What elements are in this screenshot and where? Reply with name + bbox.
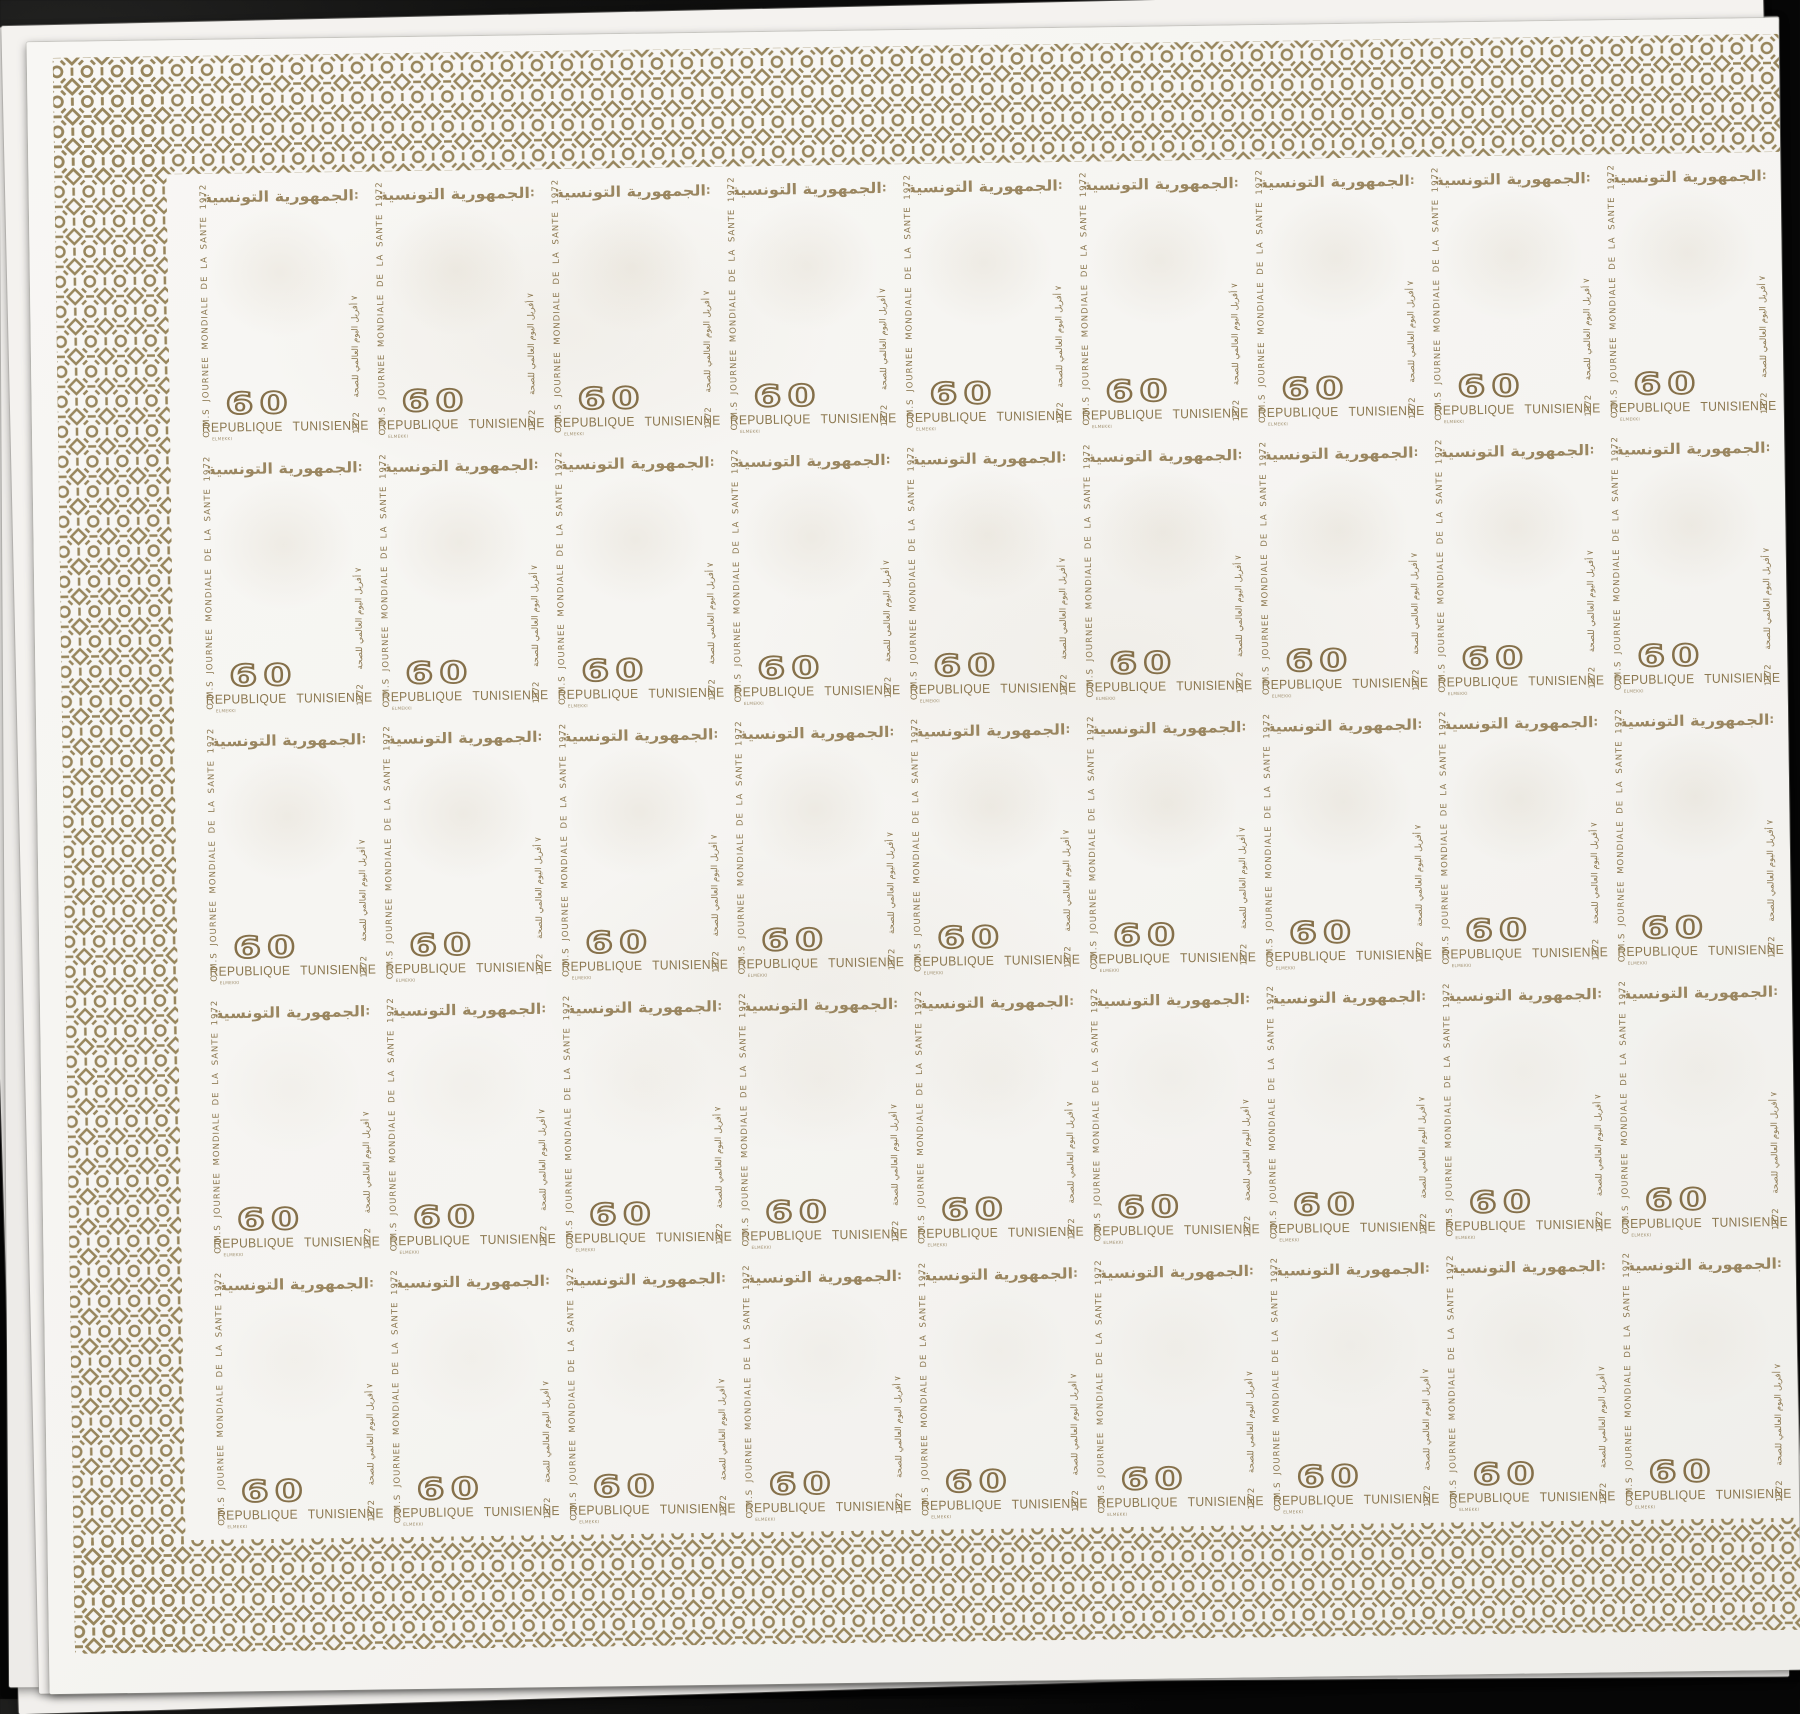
stamp-ghost-offset [737,200,880,384]
stamp-denomination: 60 [761,925,830,956]
stamp-denomination: 60 [405,657,474,688]
stamp-left-inscription: O.M.S JOURNEE MONDIALE DE LA SANTE 1972 [1614,738,1627,962]
stamp-denomination: 60 [1121,1464,1190,1495]
stamp-arabic-title: : الجمهورية التونسية : [907,176,1062,200]
stamp-artist-signature: ELMEKKI [1628,961,1648,966]
stamp-artist-signature: ELMEKKI [755,1517,775,1522]
stamp-artist-signature: ELMEKKI [1631,1233,1651,1238]
right-date-arabic: ٧ أفريل [1065,1102,1075,1129]
right-date-arabic: ٧ أفريل [538,1109,548,1136]
stamp-right-inscription: 1972 ٧ أفريل اليوم العالمي للصحة [1585,462,1598,688]
stamp-right-inscription: 1972 ٧ أفريل اليوم العالمي للصحة [1592,1006,1605,1232]
stamp-right-inscription: 1972 ٧ أفريل اليوم العالمي للصحة [1233,467,1246,693]
stamp-ghost-offset [1452,1007,1595,1191]
arabic-title-text: الجمهورية التونسية [1102,1262,1250,1282]
stamp-arabic-title: : الجمهورية التونسية : [1258,171,1413,195]
stamp-right-inscription: 1972 ٧ أفريل اليوم العالمي للصحة [1420,1281,1433,1507]
arabic-title-text: الجمهورية التونسية [1262,172,1410,192]
stamp: : الجمهورية التونسية : O.M.S JOURNEE MON… [1434,976,1614,1250]
stamp: : الجمهورية التونسية : O.M.S JOURNEE MON… [370,447,550,721]
stamp-right-inscription: 1972 ٧ أفريل اليوم العالمي للصحة [716,1291,729,1517]
right-date-arabic: ٧ أفريل [1597,1366,1607,1393]
stamp-ghost-offset [1280,1281,1423,1465]
stamp: : الجمهورية التونسية : O.M.S JOURNEE MON… [1430,704,1610,978]
stamp-country-name: REPUBLIQUE TUNISIENNE [921,1497,1081,1512]
title-dots-right: : [897,1266,901,1284]
stamp-right-inscription: 1972 ٧ أفريل اليوم العالمي للصحة [705,475,718,701]
stamp-left-inscription: O.M.S JOURNEE MONDIALE DE LA SANTE 1972 [551,209,564,433]
right-date-arabic: ٧ أفريل [365,1384,375,1411]
stamp-denomination: 60 [1457,371,1526,402]
stamp-denomination: 60 [1105,376,1174,407]
right-phrase-arabic: اليوم العالمي للصحة [1594,1124,1605,1196]
stamp-artist-signature: ELMEKKI [568,704,588,709]
stamp-ghost-offset [748,1016,891,1200]
stamp: : الجمهورية التونسية : O.M.S JOURNEE MON… [906,984,1086,1258]
stamp-arabic-title: : الجمهورية التونسية : [214,1002,369,1026]
right-phrase-arabic: اليوم العالمي للصحة [1242,1129,1253,1201]
stamp-artist-signature: ELMEKKI [1452,963,1472,968]
stamp: : الجمهورية التونسية : O.M.S JOURNEE MON… [202,993,382,1267]
stamp-arabic-title: : الجمهورية التونسية : [746,1266,901,1290]
stamp: : الجمهورية التونسية : O.M.S JOURNEE MON… [1258,979,1438,1253]
stamp-artist-signature: ELMEKKI [924,971,944,976]
stamp-right-inscription: 1972 ٧ أفريل اليوم العالمي للصحة [360,1024,373,1250]
stamp-left-inscription: O.M.S JOURNEE MONDIALE DE LA SANTE 1972 [1086,745,1099,969]
stamp: : الجمهورية التونسية : O.M.S JOURNEE MON… [1070,165,1250,439]
stamp-artist-signature: ELMEKKI [223,1253,243,1258]
right-date-arabic: ٧ أفريل [717,1379,727,1406]
title-dots-right: : [1597,984,1601,1002]
stamp-right-inscription: 1972 ٧ أفريل اليوم العالمي للصحة [525,205,538,431]
stamp: : الجمهورية التونسية : O.M.S JOURNEE MON… [722,442,902,716]
arabic-title-text: الجمهورية التونسية [390,728,538,748]
stamp-arabic-title: : الجمهورية التونسية : [555,181,710,205]
stamp: : الجمهورية التونسية : O.M.S JOURNEE MON… [1086,1253,1266,1527]
right-date-arabic: ٧ أفريل [893,1376,903,1403]
right-phrase-arabic: اليوم العالمي للصحة [1062,860,1073,932]
stamp-artist-signature: ELMEKKI [1620,417,1640,422]
title-dots-right: : [541,999,545,1017]
stamp: : الجمهورية التونسية : O.M.S JOURNEE MON… [366,175,546,449]
right-phrase-arabic: اليوم العالمي للصحة [718,1409,729,1481]
stamp-right-inscription: 1972 ٧ أفريل اليوم العالمي للصحة [1068,1286,1081,1512]
stamp-arabic-title: : الجمهورية التونسية : [1450,1256,1605,1280]
stamp-denomination: 60 [241,1476,310,1507]
stamp: : الجمهورية التونسية : O.M.S JOURNEE MON… [1610,974,1790,1248]
title-dots-right: : [1234,173,1238,191]
stamp-artist-signature: ELMEKKI [403,1522,423,1527]
stamp-left-inscription: O.M.S JOURNEE MONDIALE DE LA SANTE 1972 [918,1292,931,1516]
right-phrase-arabic: اليوم العالمي للصحة [354,598,365,670]
stamp-country-name: REPUBLIQUE TUNISIENNE [1097,1494,1257,1509]
arabic-title-text: الجمهورية التونسية [1270,716,1418,736]
title-dots-right: : [706,181,710,199]
stamp-ghost-offset [561,203,704,387]
title-dots-right: : [530,183,534,201]
arabic-title-text: الجمهورية التونسية [742,723,890,743]
title-dots-right: : [1069,992,1073,1010]
stamp-left-inscription: O.M.S JOURNEE MONDIALE DE LA SANTE 1972 [1266,1015,1279,1239]
stamp-ghost-offset [1100,1011,1243,1195]
stamp: : الجمهورية التونسية : O.M.S JOURNEE MON… [1082,981,1262,1255]
stamp-left-inscription: O.M.S JOURNEE MONDIALE DE LA SANTE 1972 [1446,1284,1459,1508]
arabic-title-text: الجمهورية التونسية [574,1270,722,1290]
right-date-arabic: ٧ أفريل [706,563,716,590]
stamp-country-name: REPUBLIQUE TUNISIENNE [393,1504,553,1519]
stamp-artist-signature: ELMEKKI [1268,422,1288,427]
stamp-country-name: REPUBLIQUE TUNISIENNE [737,955,897,970]
right-date-arabic: ٧ أفريل [1234,555,1244,582]
stamp-left-inscription: O.M.S JOURNEE MONDIALE DE LA SANTE 1972 [1611,466,1624,690]
right-phrase-arabic: اليوم العالمي للصحة [1582,309,1593,381]
stamp-artist-signature: ELMEKKI [579,1520,599,1525]
right-phrase-arabic: اليوم العالمي للصحة [366,1414,377,1486]
right-date-arabic: ٧ أفريل [1241,1099,1251,1126]
stamp-ghost-offset [1624,732,1767,916]
arabic-title-text: الجمهورية التونسية [1274,988,1422,1008]
right-phrase-arabic: اليوم العالمي للصحة [1598,1396,1609,1468]
stamp-ghost-offset [744,744,887,928]
stamp-arabic-title: : الجمهورية التونسية : [1266,715,1421,739]
stamp: : الجمهورية التونسية : O.M.S JOURNEE MON… [1426,432,1606,706]
right-phrase-arabic: اليوم العالمي للصحة [710,865,721,937]
stamp-arabic-title: : الجمهورية التونسية : [731,178,886,202]
arabic-title-text: الجمهورية التونسية [398,1272,546,1292]
stamp-artist-signature: ELMEKKI [1279,1238,1299,1243]
stamp-right-inscription: 1972 ٧ أفريل اليوم العالمي للصحة [536,1021,549,1247]
stamp-ghost-offset [1632,1276,1775,1460]
stamp-artist-signature: ELMEKKI [1635,1505,1655,1510]
stamp-denomination: 60 [1472,1459,1541,1490]
right-date-arabic: ٧ أفريل [1414,825,1424,852]
stamp-denomination: 60 [1296,1461,1365,1492]
stamp-arabic-title: : الجمهورية التونسية : [1446,984,1601,1008]
stamp-artist-signature: ELMEKKI [572,976,592,981]
stamp-left-inscription: O.M.S JOURNEE MONDIALE DE LA SANTE 1972 [742,1294,755,1518]
stamp-artist-signature: ELMEKKI [212,437,232,442]
stamp-ghost-offset [1276,1009,1419,1193]
stamp-artist-signature: ELMEKKI [1103,1240,1123,1245]
right-date-arabic: ٧ أفريل [886,832,896,859]
stamp-denomination: 60 [1648,1456,1717,1487]
right-date-arabic: ٧ أفريل [713,1107,723,1134]
stamp-country-name: REPUBLIQUE TUNISIENNE [1262,676,1422,691]
arabic-title-text: الجمهورية التونسية [206,187,354,207]
right-phrase-arabic: اليوم العالمي للصحة [1586,580,1597,652]
stamp-artist-signature: ELMEKKI [392,706,412,711]
stamp-country-name: REPUBLIQUE TUNISIENNE [1445,1217,1605,1232]
right-date-arabic: ٧ أفريل [350,296,360,323]
stamp-country-name: REPUBLIQUE TUNISIENNE [1265,948,1425,963]
arabic-title-text: الجمهورية التونسية [1453,1257,1601,1277]
right-date-arabic: ٧ أفريل [1586,551,1596,578]
stamp: : الجمهورية التونسية : O.M.S JOURNEE MON… [378,991,558,1265]
stamp-right-inscription: 1972 ٧ أفريل اليوم العالمي للصحة [892,1288,905,1514]
stamp-left-inscription: O.M.S JOURNEE MONDIALE DE LA SANTE 1972 [914,1020,927,1244]
arabic-title-text: الجمهورية التونسية [214,731,362,751]
stamp-denomination: 60 [1117,1192,1186,1223]
right-date-arabic: ٧ أفريل [530,565,540,592]
stamp-country-name: REPUBLIQUE TUNISIENNE [554,414,714,429]
stamp-ghost-offset [913,198,1056,382]
right-phrase-arabic: اليوم العالمي للصحة [1230,313,1241,385]
stamp-artist-signature: ELMEKKI [575,1248,595,1253]
photo-background: { "scene": { "description_colors": { "ba… [0,0,1800,1699]
stamp-left-inscription: O.M.S JOURNEE MONDIALE DE LA SANTE 1972 [738,1022,751,1246]
stamp-artist-signature: ELMEKKI [396,978,416,983]
right-phrase-arabic: اليوم العالمي للصحة [1410,583,1421,655]
right-date-arabic: ٧ أفريل [882,560,892,587]
stamp-right-inscription: 1972 ٧ أفريل اليوم العالمي للصحة [529,477,542,703]
stamp: : الجمهورية التونسية : O.M.S JOURNEE MON… [1602,430,1782,704]
stamp-right-inscription: 1972 ٧ أفريل اليوم العالمي للصحة [884,744,897,970]
stamp-arabic-title: : الجمهورية التونسية : [910,448,1065,472]
stamp-ghost-offset [392,749,535,933]
stamp-ghost-offset [741,472,884,656]
right-phrase-arabic: اليوم العالمي للصحة [1418,1127,1429,1199]
stamp-artist-signature: ELMEKKI [748,973,768,978]
stamp-country-name: REPUBLIQUE TUNISIENNE [206,691,366,706]
right-date-arabic: ٧ أفريل [526,293,536,320]
stamp-ghost-offset [220,1024,363,1208]
stamp: : الجمهورية التونسية : O.M.S JOURNEE MON… [382,1263,562,1537]
arabic-title-text: الجمهورية التونسية [386,456,534,476]
stamp-arabic-title: : الجمهورية التونسية : [386,727,541,751]
stamp-arabic-title: : الجمهورية التونسية : [1618,710,1773,734]
right-phrase-arabic: اليوم العالمي للصحة [1066,1132,1077,1204]
arabic-title-text: الجمهورية التونسية [1086,174,1234,194]
stamp-left-inscription: O.M.S JOURNEE MONDIALE DE LA SANTE 1972 [731,478,744,702]
arabic-title-text: الجمهورية التونسية [1450,985,1598,1005]
stamp-denomination: 60 [933,650,1002,681]
stamp-ghost-offset [572,1019,715,1203]
stamp-right-inscription: 1972 ٧ أفريل اليوم العالمي للصحة [1409,465,1422,691]
right-date-arabic: ٧ أفريل [1406,281,1416,308]
arabic-title-text: الجمهورية التونسية [566,726,714,746]
right-date-arabic: ٧ أفريل [358,840,368,867]
stamp-country-name: REPUBLIQUE TUNISIENNE [1621,1215,1781,1230]
stamp-arabic-title: : الجمهورية التونسية : [914,720,1069,744]
stamp-right-inscription: 1972 ٧ أفريل اليوم العالمي للصحة [1240,1011,1253,1237]
arabic-title-text: الجمهورية التونسية [1626,983,1774,1003]
title-dots-right: : [1425,1259,1429,1277]
stamp-ghost-offset [920,742,1063,926]
right-date-arabic: ٧ أفريل [710,835,720,862]
stamp-denomination: 60 [1293,1189,1362,1220]
stamp-arabic-title: : الجمهورية التونسية : [918,992,1073,1016]
stamp-denomination: 60 [577,383,646,414]
stamp-country-name: REPUBLIQUE TUNISIENNE [209,963,369,978]
stamp-right-inscription: 1972 ٧ أفريل اليوم العالمي للصحة [1060,742,1073,968]
title-dots-right: : [1058,176,1062,194]
stamp-arabic-title: : الجمهورية التونسية : [1614,438,1769,462]
stamp: : الجمهورية التونسية : O.M.S JOURNEE MON… [558,1261,738,1535]
right-date-arabic: ٧ أفريل [1582,279,1592,306]
stamp-country-name: REPUBLIQUE TUNISIENNE [558,686,718,701]
stamp-artist-signature: ELMEKKI [1276,966,1296,971]
stamp-right-inscription: 1972 ٧ أفريل اليوم العالمي للصحة [532,749,545,975]
arabic-title-text: الجمهورية التونسية [1098,990,1246,1010]
stamp-ghost-offset [1621,460,1764,644]
stamp-right-inscription: 1972 ٧ أفريل اليوم العالمي للصحة [1772,1276,1785,1502]
stamp-country-name: REPUBLIQUE TUNISIENNE [910,681,1070,696]
stamp: : الجمهورية التونسية : O.M.S JOURNEE MON… [1254,707,1434,981]
right-phrase-arabic: اليوم العالمي للصحة [362,1142,373,1214]
stamp-country-name: REPUBLIQUE TUNISIENNE [213,1235,373,1250]
stamp: : الجمهورية التونسية : O.M.S JOURNEE MON… [1078,709,1258,983]
stamp-left-inscription: O.M.S JOURNEE MONDIALE DE LA SANTE 1972 [1431,197,1444,421]
stamp-country-name: REPUBLIQUE TUNISIENNE [1441,945,1601,960]
right-phrase-arabic: اليوم العالمي للصحة [527,323,538,395]
title-dots-right: : [369,1274,373,1292]
stamp-right-inscription: 1972 ٧ أفريل اليوم العالمي للصحة [712,1019,725,1245]
stamp-right-inscription: 1972 ٧ أفريل اليوم العالمي للصحة [1229,195,1242,421]
stamp-left-inscription: O.M.S JOURNEE MONDIALE DE LA SANTE 1972 [1270,1287,1283,1511]
right-phrase-arabic: اليوم العالمي للصحة [538,1139,549,1211]
right-phrase-arabic: اليوم العالمي للصحة [530,595,541,667]
stamp-arabic-title: : الجمهورية التونسية : [570,1269,725,1293]
title-dots-right: : [1237,445,1241,463]
title-dots-right: : [1765,438,1769,456]
stamp: : الجمهورية التونسية : O.M.S JOURNEE MON… [190,178,370,452]
right-phrase-arabic: اليوم العالمي للصحة [534,867,545,939]
stamp-arabic-title: : الجمهورية التونسية : [1438,440,1593,464]
stamp-right-inscription: 1972 ٧ أفريل اليوم العالمي للصحة [1416,1009,1429,1235]
stamp-right-inscription: 1972 ٧ أفريل اليوم العالمي للصحة [1236,739,1249,965]
right-date-arabic: ٧ أفريل [1773,1364,1783,1391]
stamp-arabic-title: : الجمهورية التونسية : [1270,987,1425,1011]
stamp-denomination: 60 [753,381,822,412]
stamp-country-name: REPUBLIQUE TUNISIENNE [1449,1489,1609,1504]
arabic-title-text: الجمهورية التونسية [570,998,718,1018]
stamp-denomination: 60 [1461,643,1530,674]
stamp-arabic-title: : الجمهورية التونسية : [922,1264,1077,1288]
stamp: : الجمهورية التونسية : O.M.S JOURNEE MON… [734,1258,914,1532]
stamp-country-name: REPUBLIQUE TUNISIENNE [1617,943,1777,958]
stamp-denomination: 60 [929,378,998,409]
right-date-arabic: ٧ أفريل [1417,1097,1427,1124]
stamp-right-inscription: 1972 ٧ أفريل اليوم العالمي للصحة [1596,1278,1609,1504]
stamp-country-name: REPUBLIQUE TUNISIENNE [730,411,890,426]
stamp-country-name: REPUBLIQUE TUNISIENNE [1625,1487,1785,1502]
stamp-right-inscription: 1972 ٧ أفريل اليوم العالمي للصحة [1757,188,1770,414]
stamp: : الجمهورية التونسية : O.M.S JOURNEE MON… [1606,702,1786,976]
stamp-country-name: REPUBLIQUE TUNISIENNE [913,953,1073,968]
stamp-country-name: REPUBLIQUE TUNISIENNE [389,1232,549,1247]
right-phrase-arabic: اليوم العالمي للصحة [890,1134,901,1206]
arabic-title-text: الجمهورية التونسية [1278,1260,1426,1280]
stamp-ghost-offset [1445,463,1588,647]
stamp-country-name: REPUBLIQUE TUNISIENNE [569,1502,729,1517]
stamp: : الجمهورية التونسية : O.M.S JOURNEE MON… [1422,160,1602,434]
stamp-arabic-title: : الجمهورية التونسية : [379,183,534,207]
stamp-ghost-offset [385,205,528,389]
stamp-denomination: 60 [585,927,654,958]
stamp-denomination: 60 [765,1197,834,1228]
title-dots-right: : [1065,720,1069,738]
stamp-left-inscription: O.M.S JOURNEE MONDIALE DE LA SANTE 1972 [1083,473,1096,697]
stamp-country-name: REPUBLIQUE TUNISIENNE [917,1225,1077,1240]
right-phrase-arabic: اليوم العالمي للصحة [878,318,889,390]
stamp-artist-signature: ELMEKKI [216,709,236,714]
stamp-denomination: 60 [945,1466,1014,1497]
arabic-title-text: الجمهورية التونسية [1629,1255,1777,1275]
stamp-denomination: 60 [1289,917,1358,948]
arabic-title-text: الجمهورية التونسية [1266,444,1414,464]
stamp-country-name: REPUBLIQUE TUNISIENNE [1086,678,1246,693]
stamp-left-inscription: O.M.S JOURNEE MONDIALE DE LA SANTE 1972 [555,481,568,705]
stamp-right-inscription: 1972 ٧ أفريل اليوم العالمي للصحة [1768,1004,1781,1230]
stamp-left-inscription: O.M.S JOURNEE MONDIALE DE LA SANTE 1972 [1442,1013,1455,1237]
arabic-title-text: الجمهورية التونسية [1094,718,1242,738]
right-phrase-arabic: اليوم العالمي للصحة [1770,1122,1781,1194]
stamp-artist-signature: ELMEKKI [1272,694,1292,699]
arabic-title-text: الجمهورية التونسية [746,995,894,1015]
arabic-title-text: الجمهورية التونسية [914,449,1062,469]
right-date-arabic: ٧ أفريل [1769,1092,1779,1119]
right-date-arabic: ٧ أفريل [1238,827,1248,854]
right-phrase-arabic: اليوم العالمي للصحة [886,862,897,934]
stamp-arabic-title: : الجمهورية التونسية : [394,1271,549,1295]
stamp-ghost-offset [1272,737,1415,921]
stamp-artist-signature: ELMEKKI [1107,1512,1127,1517]
stamp-country-name: REPUBLIQUE TUNISIENNE [382,688,542,703]
right-phrase-arabic: اليوم العالمي للصحة [1774,1394,1785,1466]
stamp-arabic-title: : الجمهورية التونسية : [738,722,893,746]
stamp-ghost-offset [576,1291,719,1475]
stamp: : الجمهورية التونسية : O.M.S JOURNEE MON… [898,440,1078,714]
stamp-left-inscription: O.M.S JOURNEE MONDIALE DE LA SANTE 1972 [386,1027,399,1251]
stamp-left-inscription: O.M.S JOURNEE MONDIALE DE LA SANTE 1972 [1259,471,1272,695]
stamp: : الجمهورية التونسية : O.M.S JOURNEE MON… [542,173,722,447]
arabic-title-text: الجمهورية التونسية [1442,441,1590,461]
stamp-arabic-title: : الجمهورية التونسية : [1626,1254,1781,1278]
right-date-arabic: ٧ أفريل [1058,558,1068,585]
stamp-denomination: 60 [1633,368,1702,399]
stamp-denomination: 60 [581,655,650,686]
stamp-arabic-title: : الجمهورية التونسية : [558,453,713,477]
stamp: : الجمهورية التونسية : O.M.S JOURNEE MON… [730,986,910,1260]
right-date-arabic: ٧ أفريل [534,837,544,864]
stamp: : الجمهورية التونسية : O.M.S JOURNEE MON… [726,714,906,988]
stamp-artist-signature: ELMEKKI [1624,689,1644,694]
stamp-denomination: 60 [1465,915,1534,946]
stamp-left-inscription: O.M.S JOURNEE MONDIALE DE LA SANTE 1972 [390,1299,403,1523]
right-phrase-arabic: اليوم العالمي للصحة [358,870,369,942]
title-dots-right: : [537,727,541,745]
stamp-right-inscription: 1972 ٧ أفريل اليوم العالمي للصحة [701,203,714,429]
stamp-left-inscription: O.M.S JOURNEE MONDIALE DE LA SANTE 1972 [1262,743,1275,967]
right-phrase-arabic: اليوم العالمي للصحة [1762,578,1773,650]
stamp-ghost-offset [1617,188,1760,372]
stamp-right-inscription: 1972 ٧ أفريل اليوم العالمي للصحة [364,1296,377,1522]
stamp-artist-signature: ELMEKKI [388,434,408,439]
stamp-right-inscription: 1972 ٧ أفريل اليوم العالمي للصحة [1064,1014,1077,1240]
stamp-denomination: 60 [1469,1187,1538,1218]
title-dots-right: : [1241,717,1245,735]
right-date-arabic: ٧ أفريل [1054,286,1064,313]
stamp-right-inscription: 1972 ٧ أفريل اليوم العالمي للصحة [877,200,890,426]
right-date-arabic: ٧ أفريل [1069,1374,1079,1401]
stamp-left-inscription: O.M.S JOURNEE MONDIALE DE LA SANTE 1972 [1618,1010,1631,1234]
right-phrase-arabic: اليوم العالمي للصحة [706,593,717,665]
stamp-arabic-title: : الجمهورية التونسية : [1274,1259,1429,1283]
stamp-arabic-title: : الجمهورية التونسية : [218,1274,373,1298]
stamp-left-inscription: O.M.S JOURNEE MONDIALE DE LA SANTE 1972 [383,755,396,979]
stamp-grid: : الجمهورية التونسية : O.M.S JOURNEE MON… [190,158,1793,1540]
stamp-artist-signature: ELMEKKI [1448,691,1468,696]
